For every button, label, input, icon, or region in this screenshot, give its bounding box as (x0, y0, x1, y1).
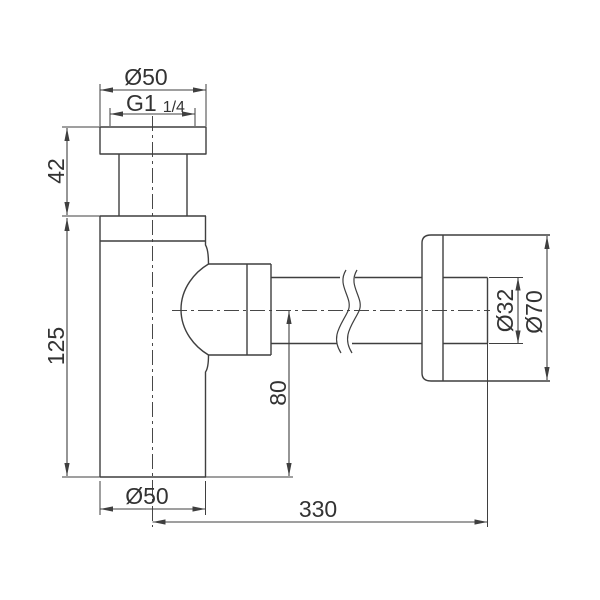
trap-outline (100, 127, 550, 477)
pipe-break-symbol (337, 270, 361, 353)
dim-label-body-diameter: Ø50 (125, 483, 168, 509)
centerlines (153, 116, 491, 527)
dim-label-length: 330 (299, 496, 337, 522)
dim-label-thread-fraction: 1/4 (163, 99, 185, 116)
outlet-dome-arc (181, 264, 209, 355)
dim-label-flange-diameter: Ø70 (521, 290, 547, 333)
dim-label-pipe-diameter: Ø32 (492, 289, 518, 332)
dim-label-thread-main: G1 (126, 90, 157, 116)
dimension-labels: Ø50 G11/4 42 125 Ø50 330 80 Ø32 Ø70 (43, 64, 547, 522)
body-right-edge-lower (206, 355, 209, 477)
dim-label-outlet-height: 80 (265, 380, 291, 406)
outlet-nut-outline (209, 264, 272, 355)
dim-label-body-height: 125 (43, 327, 69, 365)
technical-drawing-page: Ø50 G11/4 42 125 Ø50 330 80 Ø32 Ø70 (0, 0, 600, 600)
body-right-edge-upper (206, 216, 209, 264)
dim-label-top-diameter: Ø50 (124, 64, 167, 90)
dim-label-inlet-height: 42 (43, 158, 69, 184)
extension-lines (62, 84, 523, 527)
bottle-trap-drawing-canvas: Ø50 G11/4 42 125 Ø50 330 80 Ø32 Ø70 (0, 0, 600, 600)
dim-label-thread: G11/4 (126, 90, 185, 116)
dimension-lines (67, 90, 547, 522)
